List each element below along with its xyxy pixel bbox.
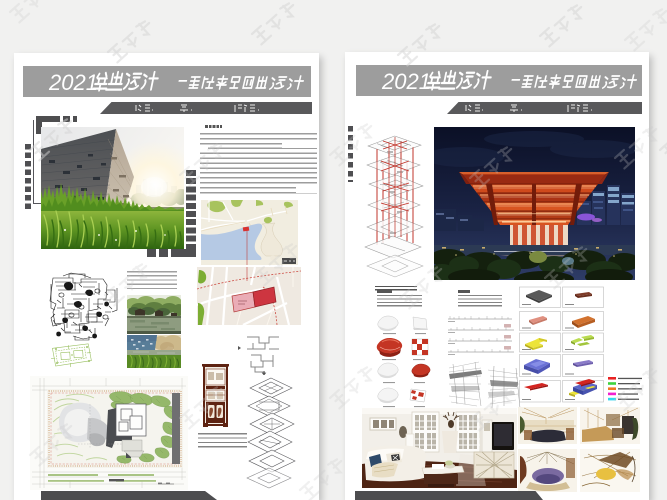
svg-text:2021: 2021 xyxy=(48,70,98,95)
svg-text:2021: 2021 xyxy=(381,69,431,94)
